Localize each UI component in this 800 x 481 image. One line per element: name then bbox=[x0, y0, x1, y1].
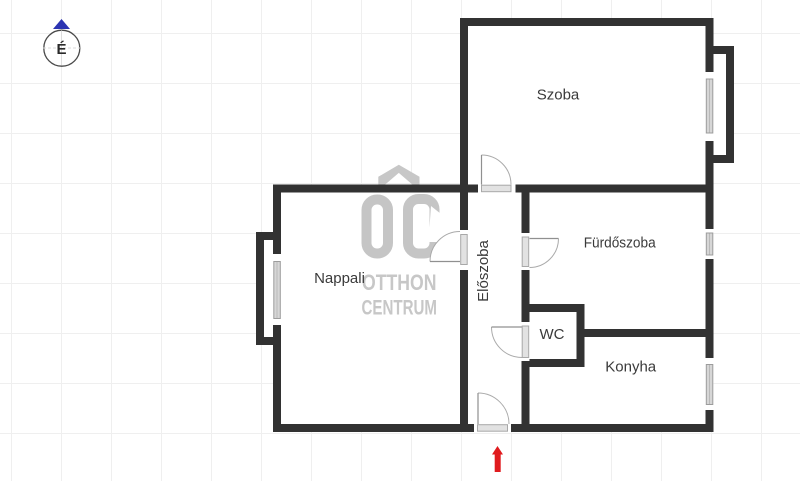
svg-text:CENTRUM: CENTRUM bbox=[362, 297, 438, 320]
svg-text:WC: WC bbox=[540, 326, 565, 343]
svg-text:Nappali: Nappali bbox=[314, 270, 365, 287]
svg-text:É: É bbox=[56, 41, 66, 58]
svg-text:Szoba: Szoba bbox=[537, 87, 580, 104]
svg-text:Fürdőszoba: Fürdőszoba bbox=[584, 235, 657, 252]
svg-text:Konyha: Konyha bbox=[605, 359, 657, 376]
svg-text:Előszoba: Előszoba bbox=[475, 239, 492, 301]
svg-text:OTTHON: OTTHON bbox=[362, 270, 437, 295]
